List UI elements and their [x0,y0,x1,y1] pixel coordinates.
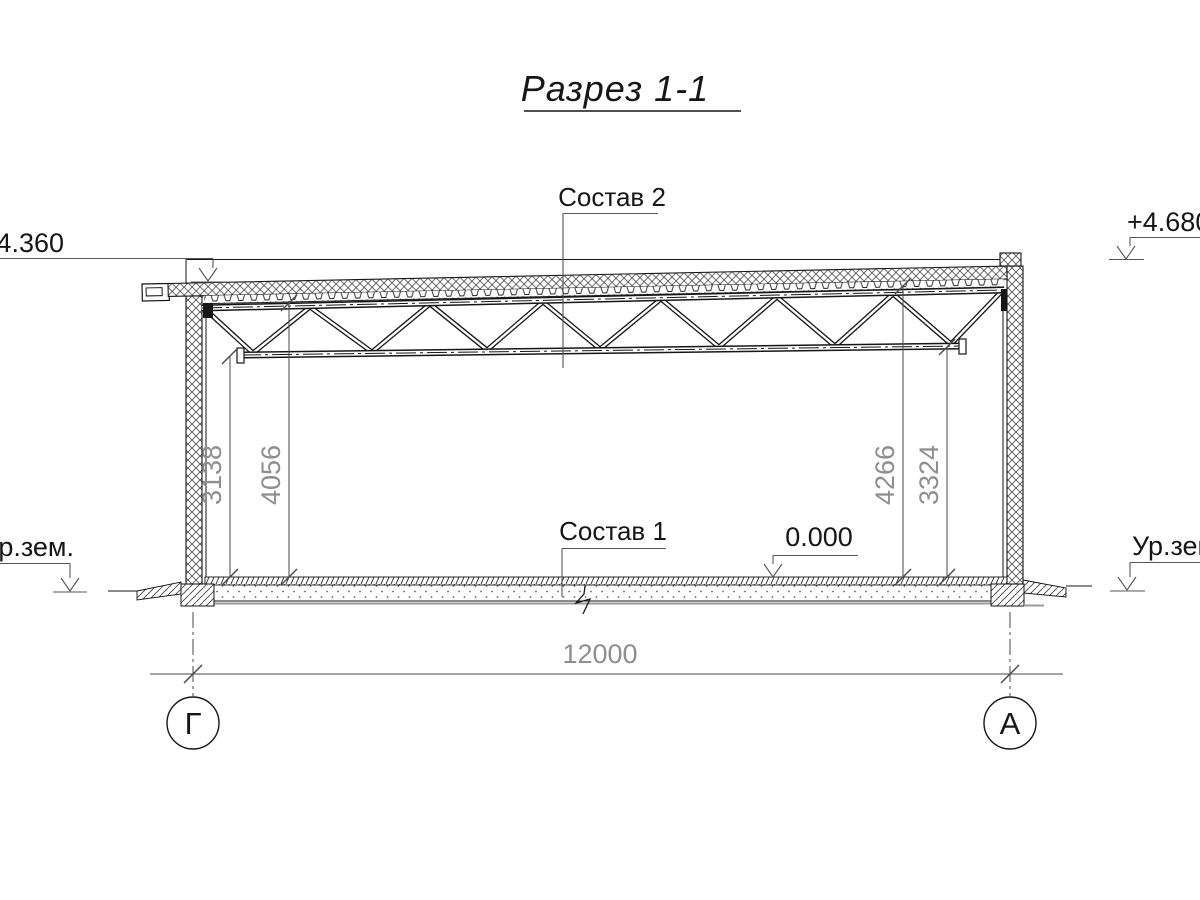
elevation-left-value: +4.360 [0,228,64,258]
foundation-left [181,584,214,606]
right-wall [1007,266,1023,584]
zero-level-value: 0.000 [785,522,853,552]
eave-fascia-inner [146,288,162,296]
drawing-title: Разрез 1-1 [521,68,741,111]
dim-value-right-outer: 3324 [914,445,944,505]
elevation-left-arrow [199,268,217,281]
axis-label-right: А [1000,706,1021,741]
floor-slab [205,577,1007,614]
bottom-chord-end-plate-right [959,339,966,354]
truss-support-left [203,303,213,318]
truss-end-post-right [1001,289,1007,311]
ground-level-left: Ур.зем. [0,532,87,592]
foundation-right [991,584,1024,606]
ground-level-right: Ур.зем. [1110,531,1200,591]
floor-composition-label: Состав 1 [559,516,667,546]
floor-underlay [205,585,1007,601]
ground-right-arrow [1118,577,1136,590]
elevation-right-value: +4.680 [1127,207,1200,237]
axis-label-left: Г [185,706,202,741]
ground-right-label: Ур.зем. [1132,531,1200,561]
span-dimension: 12000 [150,612,1063,696]
elevation-right-arrow [1117,246,1135,259]
dim-value-left-inner: 3138 [197,445,227,505]
grid-axes: Г А [167,697,1036,749]
dim-value-right-inner: 4266 [870,445,900,505]
left-wall [186,296,202,584]
section-drawing: Разрез 1-1 [0,0,1200,900]
blind-area-right [1023,580,1066,597]
right-parapet-cap [1000,253,1021,266]
blind-area-left [137,582,181,600]
ground-left-arrow [61,578,79,591]
ground-left-label: Ур.зем. [0,532,74,562]
dim-value-left-outer: 4056 [256,445,286,505]
roof-composition-label: Состав 2 [558,182,666,212]
elevation-right: +4.680 [1109,207,1200,260]
elevation-left: +4.360 [0,228,227,282]
floor-screed [205,577,1007,585]
drawing-svg: Разрез 1-1 [0,0,1200,900]
zero-level-arrow [764,564,782,577]
zero-level-marker: 0.000 [764,522,858,577]
bottom-chord-end-plate-left [237,348,244,363]
title-text: Разрез 1-1 [521,68,709,109]
span-dim-value: 12000 [562,639,637,669]
